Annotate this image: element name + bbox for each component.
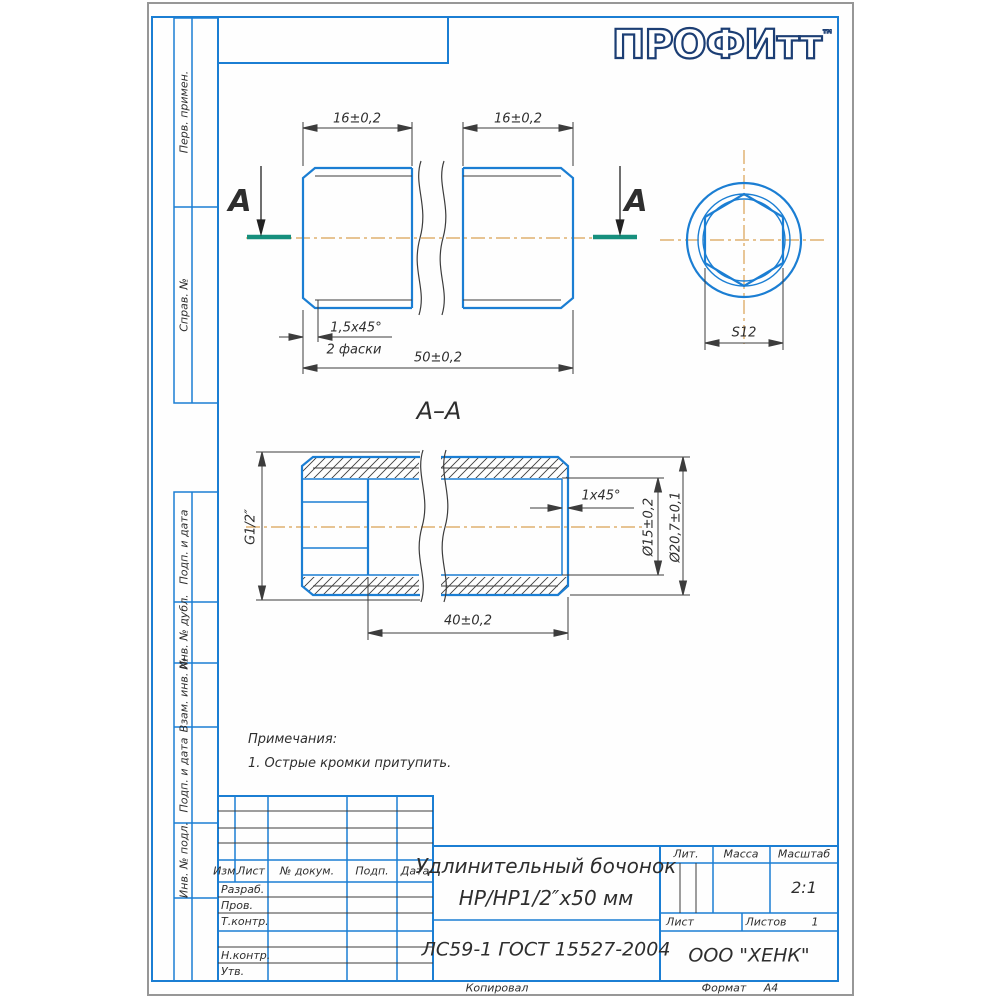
tb-sheet-label: Лист — [666, 917, 694, 928]
tb-row-nkontr: Н.контр. — [221, 950, 270, 961]
notes-item-1: 1. Острые кромки притупить. — [248, 757, 451, 770]
dim-outer-diameter: Ø20,7±0,1 — [670, 492, 683, 563]
dim-hex-size: S12 — [732, 327, 757, 340]
drawing-linework — [0, 0, 1000, 1000]
sheets-value: 1 — [812, 917, 819, 928]
sidebar-label-podp-i-data-2: Подп. и дата — [179, 738, 190, 813]
material-standard: ЛС59-1 ГОСТ 15527-2004 — [422, 941, 671, 960]
dim-thread-right: 16±0,2 — [494, 113, 542, 126]
sidebar-label-inv-no-podl: Инв. № подл. — [179, 822, 190, 898]
dim-chamfer-side: 1,5х45° — [330, 322, 381, 335]
side-view — [246, 122, 637, 374]
logo-tm: ™ — [821, 28, 834, 43]
section-letter-right: А — [624, 187, 647, 217]
dim-thread-left: 16±0,2 — [333, 113, 381, 126]
tb-header-sign: Подп. — [355, 866, 388, 877]
logo-text: ПРОФИтт — [612, 22, 821, 68]
drawing-sheet: ПРОФИтт ™ Перв. примен. Справ. № Подп. и… — [0, 0, 1000, 1000]
copied-label: Копировал — [466, 983, 529, 994]
notes-heading: Примечания: — [248, 733, 337, 746]
dim-thread-designation: G1/2″ — [245, 509, 258, 545]
tb-row-utv: Утв. — [221, 966, 244, 977]
tb-header-doc: № докум. — [280, 866, 334, 877]
format-value: А4 — [764, 983, 779, 994]
tb-header-list: Лист — [237, 866, 265, 877]
format-label: Формат — [702, 983, 747, 994]
tb-row-prov: Пров. — [221, 900, 253, 911]
tb-header-izm: Изм. — [213, 866, 239, 877]
tb-lit-label: Лит. — [673, 849, 698, 860]
dim-overall-length: 50±0,2 — [414, 352, 462, 365]
dim-chamfer-section: 1х45° — [581, 490, 620, 503]
dim-bore-diameter: Ø15±0,2 — [643, 498, 656, 556]
sidebar-label-perv-primen: Перв. примен. — [179, 71, 190, 154]
scale-value: 2:1 — [791, 880, 817, 896]
section-letter-left: А — [228, 187, 251, 217]
part-name-line2: НР/НР1/2″х50 мм — [459, 888, 633, 908]
logo: ПРОФИтт ™ — [612, 22, 834, 68]
section-view-label: А–А — [417, 399, 462, 423]
tb-scale-label: Масштаб — [778, 849, 830, 860]
tb-mass-label: Масса — [723, 849, 758, 860]
tb-row-tkontr: Т.контр. — [221, 916, 269, 927]
sidebar-label-vzam-inv-no: Взам. инв. № — [179, 658, 190, 733]
dim-section-length: 40±0,2 — [444, 615, 492, 628]
end-view — [660, 150, 828, 350]
sidebar-label-sprav-no: Справ. № — [179, 278, 190, 332]
sidebar-label-podp-i-data-1: Подп. и дата — [179, 510, 190, 585]
part-name-line1: Удлинительный бочонок — [416, 856, 677, 876]
section-view — [246, 450, 690, 640]
company-name: ООО "ХЕНК" — [688, 947, 809, 966]
sheet-frame — [152, 17, 838, 981]
tb-sheets-label: Листов — [745, 917, 786, 928]
chamfer-note: 2 фаски — [327, 344, 382, 357]
tb-row-razrab: Разраб. — [221, 884, 264, 895]
